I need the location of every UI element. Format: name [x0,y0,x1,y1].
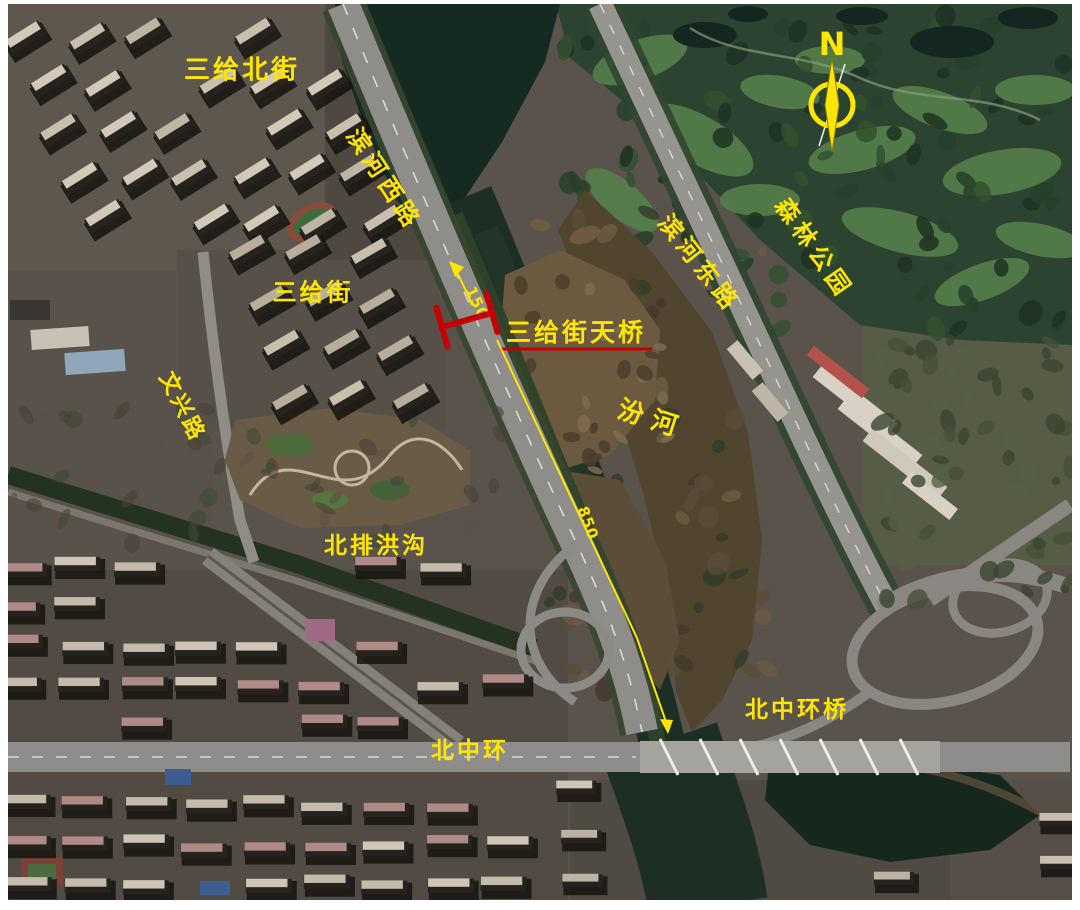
label-north-middle-ring-road: 北中环 [431,731,509,765]
label-north-drainage-ditch: 北排洪沟 [324,526,428,560]
map-canvas: 三给北街 滨河西路 三给街 文兴路 北排洪沟 北中环 北中环桥 滨河东路 森林公… [0,0,1080,910]
north-letter: N [819,25,846,63]
label-sanji-north-street: 三给北街 [184,50,300,87]
label-north-middle-ring-bridge: 北中环桥 [745,690,849,724]
label-sanji-street: 三给街 [273,273,354,308]
satellite-imagery [8,4,1072,900]
site-name-label: 三给街天桥 [506,313,646,349]
terrain-svg [8,4,1072,900]
